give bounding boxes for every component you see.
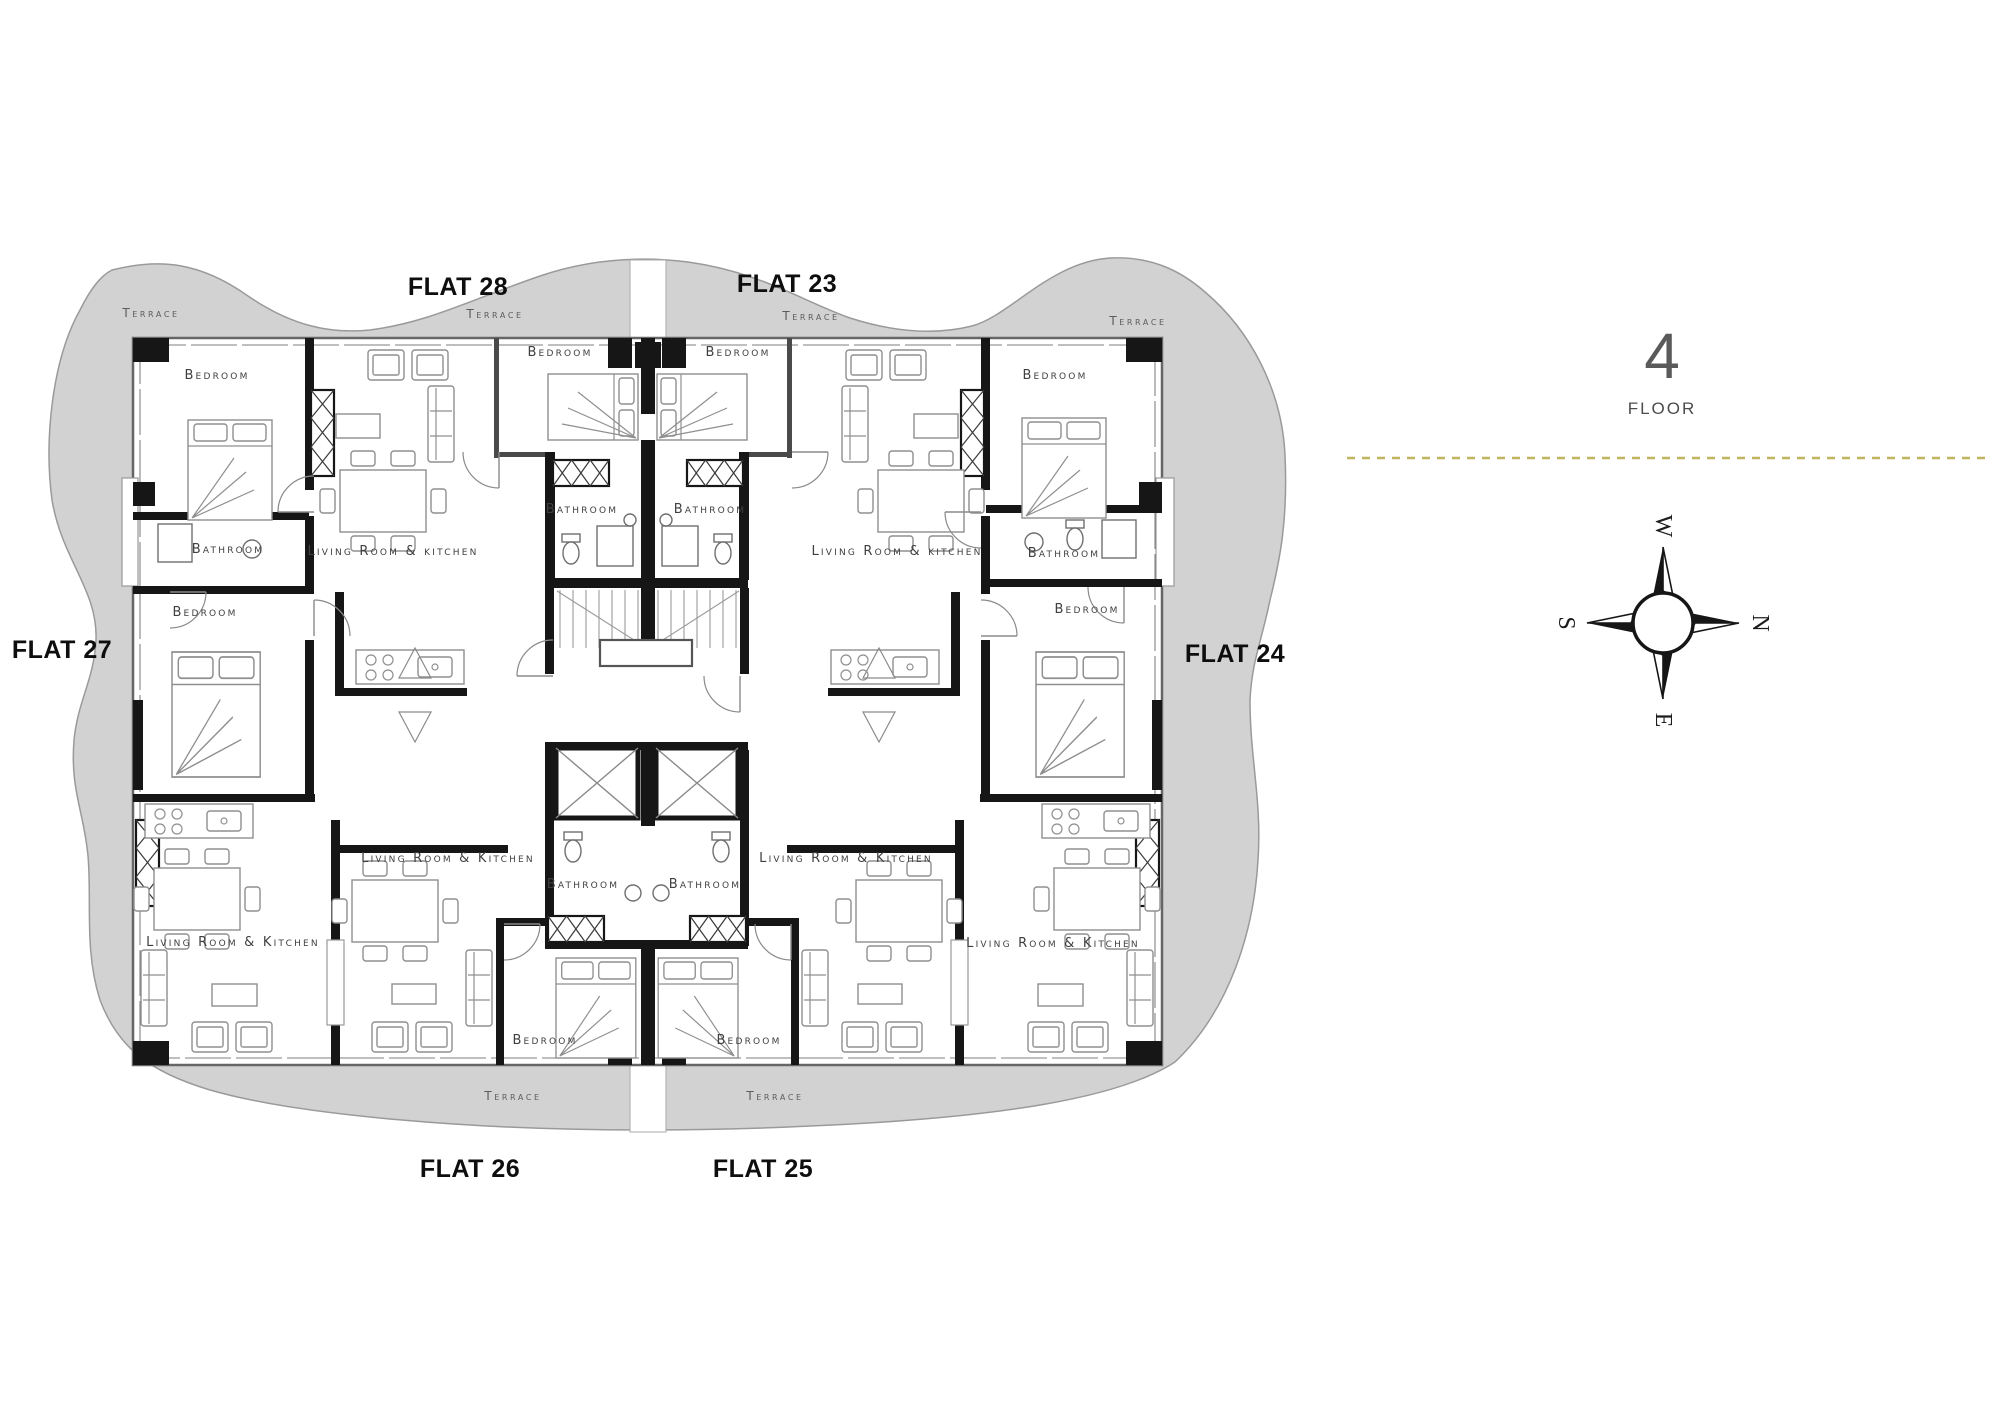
- room-label: Terrace: [781, 309, 839, 323]
- divider-window-left: [327, 940, 344, 1025]
- bed: [188, 420, 272, 520]
- room-label: Terrace: [483, 1089, 541, 1103]
- room-label: Living Room & Kitchen: [759, 851, 933, 866]
- armchair: [368, 350, 404, 380]
- sofa: [1127, 950, 1153, 1026]
- room-label: Bedroom: [512, 1033, 577, 1048]
- room-label: Bathroom: [669, 877, 741, 892]
- room-label: Living Room & kitchen: [307, 544, 478, 559]
- armchair: [842, 1022, 878, 1052]
- room-label: Bedroom: [716, 1033, 781, 1048]
- bed: [1036, 652, 1124, 777]
- corridor-strip-top: [630, 260, 666, 342]
- compass-circle: [1633, 593, 1693, 653]
- bed: [1022, 418, 1106, 518]
- sofa: [802, 950, 828, 1026]
- coffee-table: [212, 984, 257, 1006]
- armchair: [412, 350, 448, 380]
- compass-letter-bottom: E: [1650, 713, 1676, 728]
- armchair: [1072, 1022, 1108, 1052]
- bed: [657, 374, 747, 440]
- flat-label[interactable]: FLAT 26: [420, 1155, 520, 1183]
- room-label: Bedroom: [1022, 368, 1087, 383]
- coffee-table: [336, 414, 380, 438]
- kitchen-counter: [145, 804, 253, 838]
- room-label: Bathroom: [192, 542, 264, 557]
- flat-label[interactable]: FLAT 28: [408, 273, 508, 301]
- kitchen-counter: [1042, 804, 1150, 838]
- divider-window-right: [951, 940, 968, 1025]
- sofa: [466, 950, 492, 1026]
- room-label: Bedroom: [705, 345, 770, 360]
- armchair: [192, 1022, 228, 1052]
- room-label: Bathroom: [1028, 546, 1100, 561]
- room-label: Bathroom: [547, 877, 619, 892]
- floor-label: FLOOR: [1628, 399, 1697, 418]
- corridor-strip-bottom: [630, 1060, 666, 1132]
- coffee-table: [392, 984, 436, 1004]
- room-label: Terrace: [121, 306, 179, 320]
- armchair: [372, 1022, 408, 1052]
- compass-rose: W N E S: [1553, 515, 1773, 728]
- coffee-table: [858, 984, 902, 1004]
- armchair: [886, 1022, 922, 1052]
- elevator-right: [656, 748, 738, 818]
- armchair: [236, 1022, 272, 1052]
- room-label: Terrace: [465, 307, 523, 321]
- floor-number: 4: [1644, 320, 1680, 392]
- floorplan-page: TerraceTerraceTerraceTerraceTerraceTerra…: [0, 0, 2000, 1414]
- room-label: Terrace: [745, 1089, 803, 1103]
- room-label: Bedroom: [184, 368, 249, 383]
- armchair: [1028, 1022, 1064, 1052]
- sofa: [428, 386, 454, 462]
- compass-letter-top: W: [1650, 515, 1676, 538]
- flat-label[interactable]: FLAT 25: [713, 1155, 813, 1183]
- room-label: Bathroom: [674, 502, 746, 517]
- compass-letter-right: N: [1747, 614, 1773, 631]
- room-label: Bathroom: [546, 502, 618, 517]
- room-label: Bedroom: [527, 345, 592, 360]
- room-label: Living Room & Kitchen: [146, 935, 320, 950]
- room-label: Living Room & Kitchen: [361, 851, 535, 866]
- kitchen-counter: [831, 650, 939, 684]
- kitchen-counter: [356, 650, 464, 684]
- bed: [548, 374, 638, 440]
- floorplan-svg: TerraceTerraceTerraceTerraceTerraceTerra…: [0, 0, 2000, 1414]
- floor-indicator: 4 FLOOR: [1628, 320, 1697, 418]
- room-label: Living Room & Kitchen: [966, 936, 1140, 951]
- armchair: [890, 350, 926, 380]
- coffee-table: [1038, 984, 1083, 1006]
- room-label: Bedroom: [1054, 602, 1119, 617]
- room-label: Bedroom: [172, 605, 237, 620]
- elevator-left: [556, 748, 638, 818]
- coffee-table: [914, 414, 958, 438]
- armchair: [846, 350, 882, 380]
- room-label: Terrace: [1108, 314, 1166, 328]
- bed: [172, 652, 260, 777]
- sofa: [141, 950, 167, 1026]
- armchair: [416, 1022, 452, 1052]
- flat-label[interactable]: FLAT 24: [1185, 640, 1285, 668]
- flat-label[interactable]: FLAT 23: [737, 270, 837, 298]
- compass-letter-left: S: [1553, 616, 1579, 629]
- flat-label[interactable]: FLAT 27: [12, 636, 112, 664]
- sofa: [842, 386, 868, 462]
- room-label: Living Room & kitchen: [811, 544, 982, 559]
